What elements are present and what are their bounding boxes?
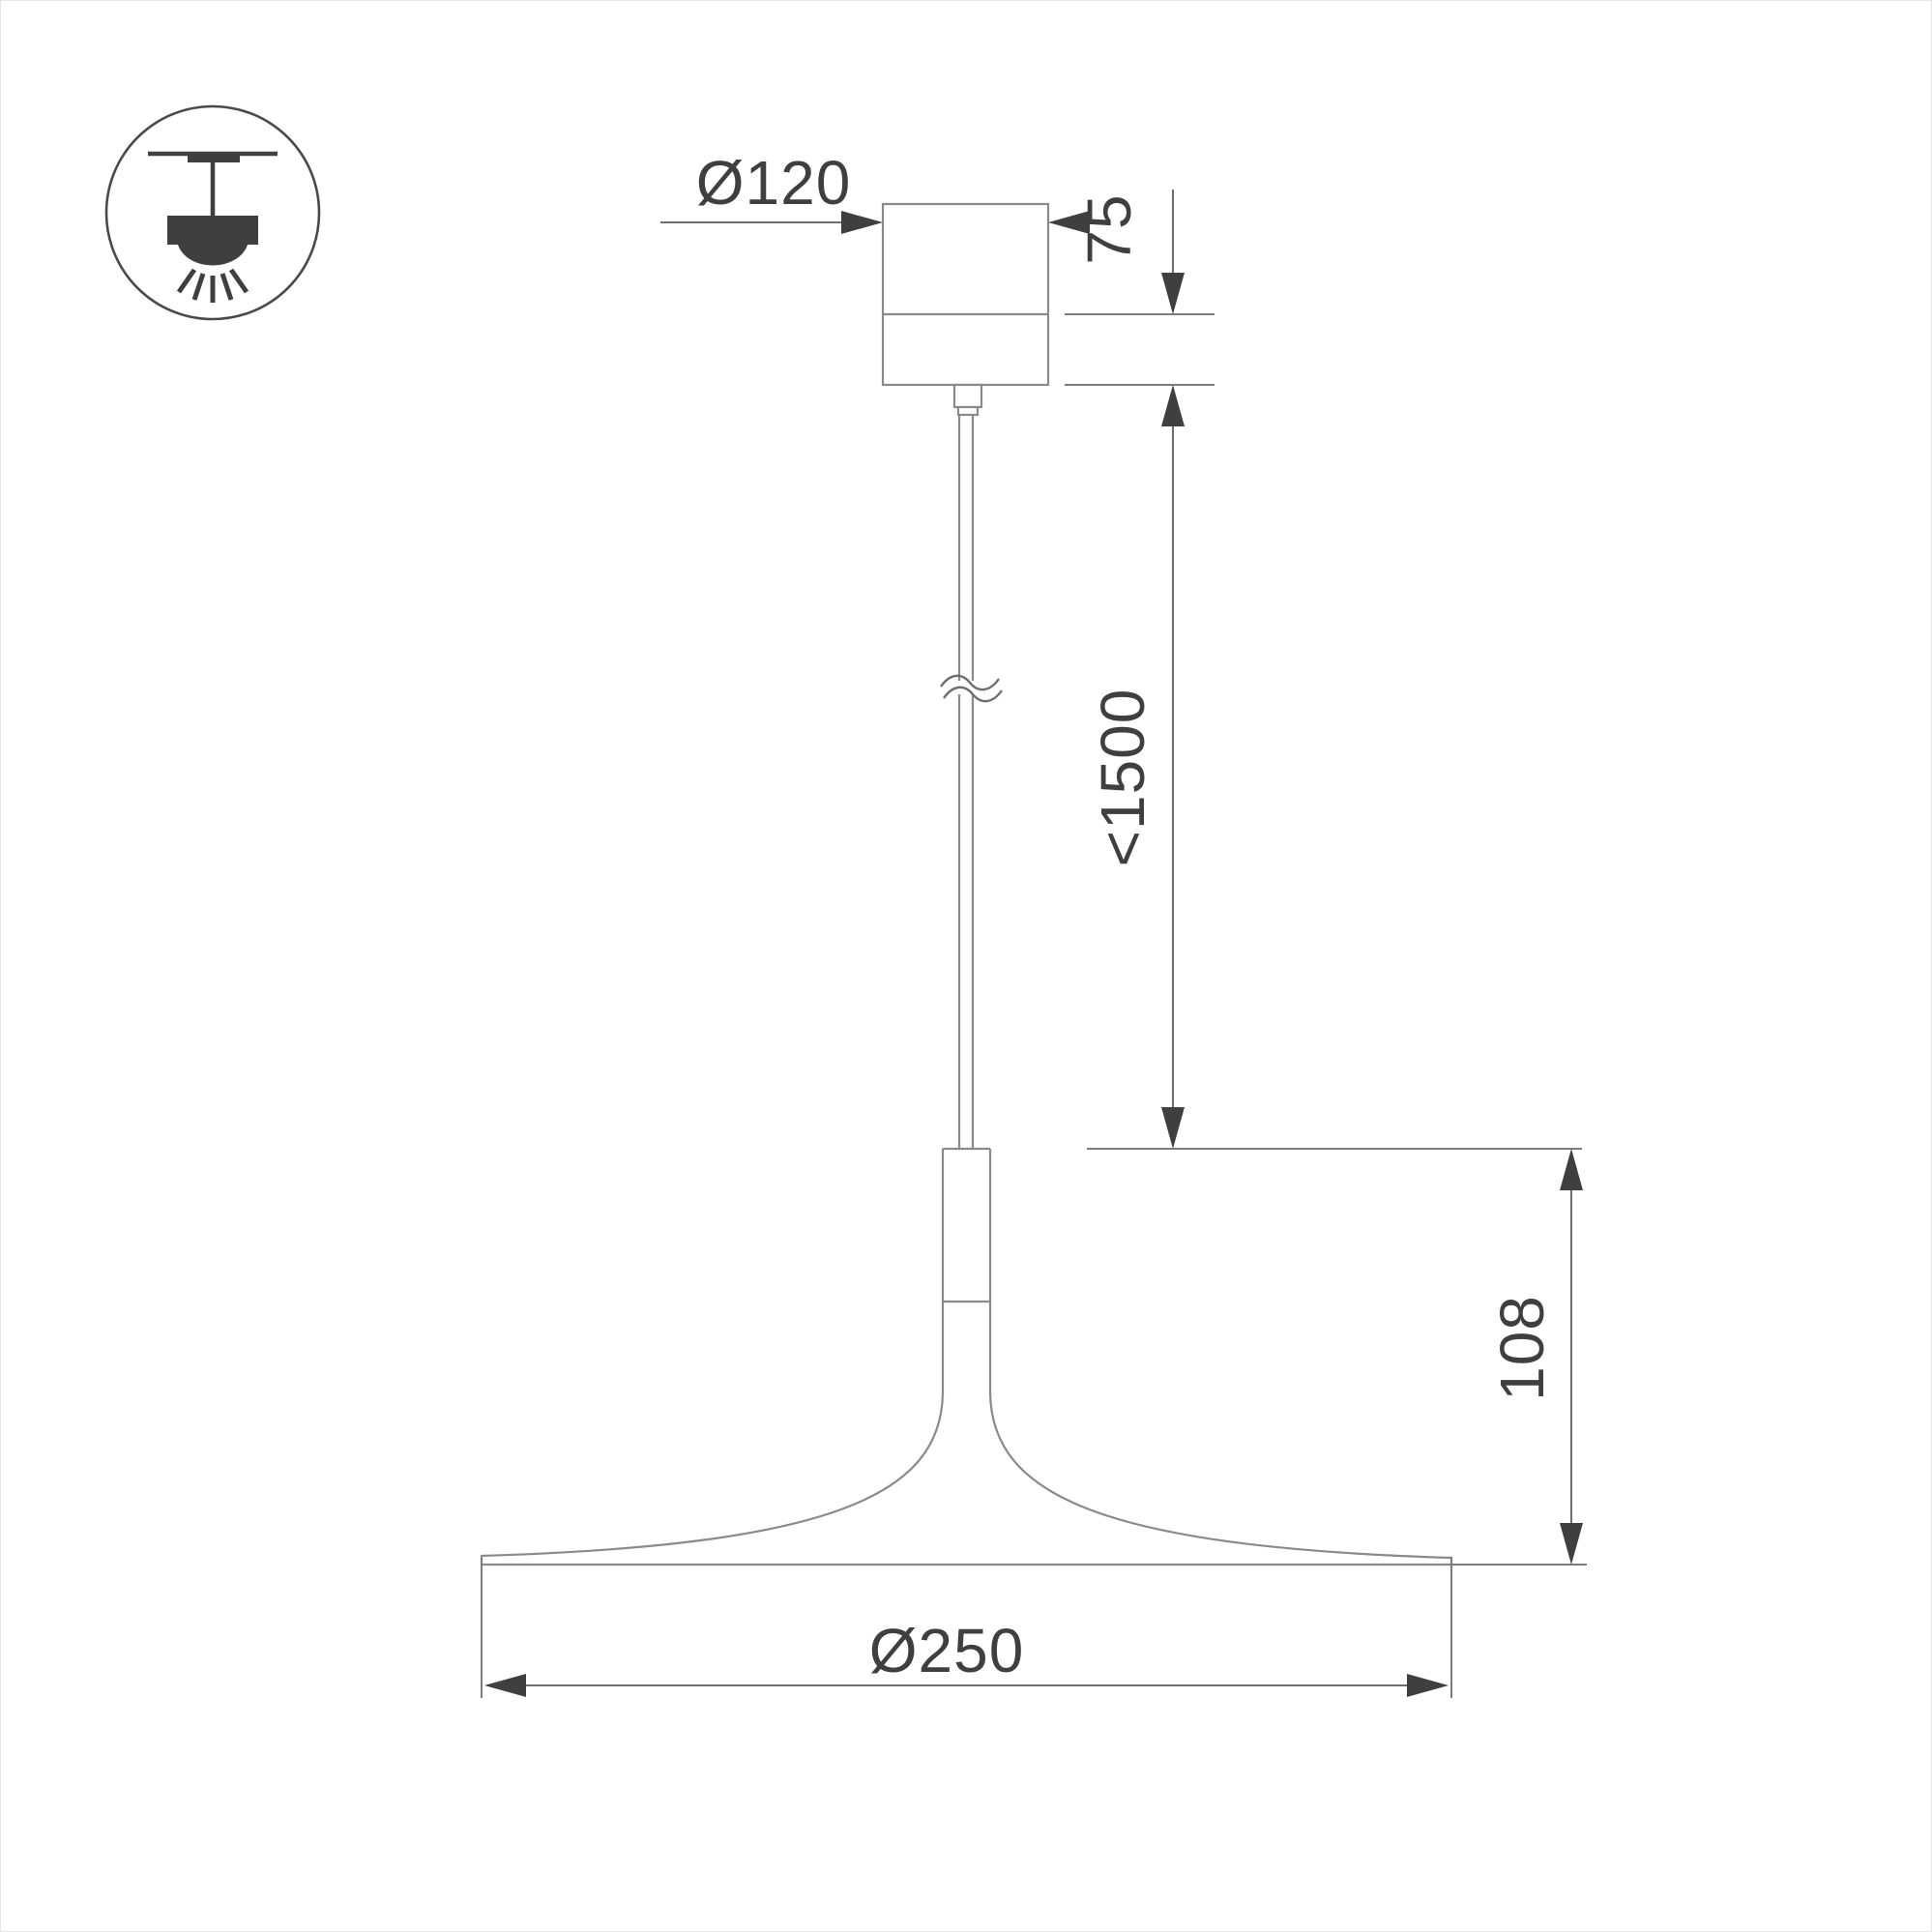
drawing-page: Ø120 75 <1500 108 [0,0,1932,1932]
head-height-label: 108 [1487,1295,1557,1401]
dimension-canopy-height: 75 [1065,190,1215,385]
arrowhead-down-pointing [1560,1523,1583,1565]
canopy-diameter-label: Ø120 [696,148,852,218]
icon-lamp-body [167,216,258,245]
dimension-shade-diameter: Ø250 [482,1558,1451,1698]
shade-left-profile [482,1149,943,1565]
arrowhead-up-pointing [1560,1149,1583,1190]
dimension-suspension-length: <1500 [1087,385,1582,1149]
cable-break-symbol [941,676,1002,701]
canopy-outline [883,204,1048,415]
arrowhead-right-pointing [1407,1674,1449,1697]
canopy-body [883,204,1048,385]
icon-mount-bar [188,152,240,162]
cable-gland-lower [958,407,978,415]
icon-light-rays [179,270,247,303]
suspension-length-label: <1500 [1088,688,1157,867]
canopy-height-label: 75 [1074,193,1144,264]
shade-right-profile [990,1149,1451,1565]
arrowhead-left-pointing [484,1674,526,1697]
suspension-cable [941,415,1002,1149]
cable-gland-upper [954,385,981,407]
arrowhead-up-pointing [1161,385,1185,426]
lamp-head-outline [482,1149,1451,1565]
dimension-head-height: 108 [1451,1149,1587,1565]
icon-light-dome [178,245,248,266]
pendant-lamp-icon [106,106,319,319]
shade-diameter-label: Ø250 [869,1616,1025,1685]
technical-drawing: Ø120 75 <1500 108 [1,1,1932,1932]
arrowhead-down-pointing [1161,273,1185,314]
arrowhead-down-pointing [1161,1107,1185,1149]
